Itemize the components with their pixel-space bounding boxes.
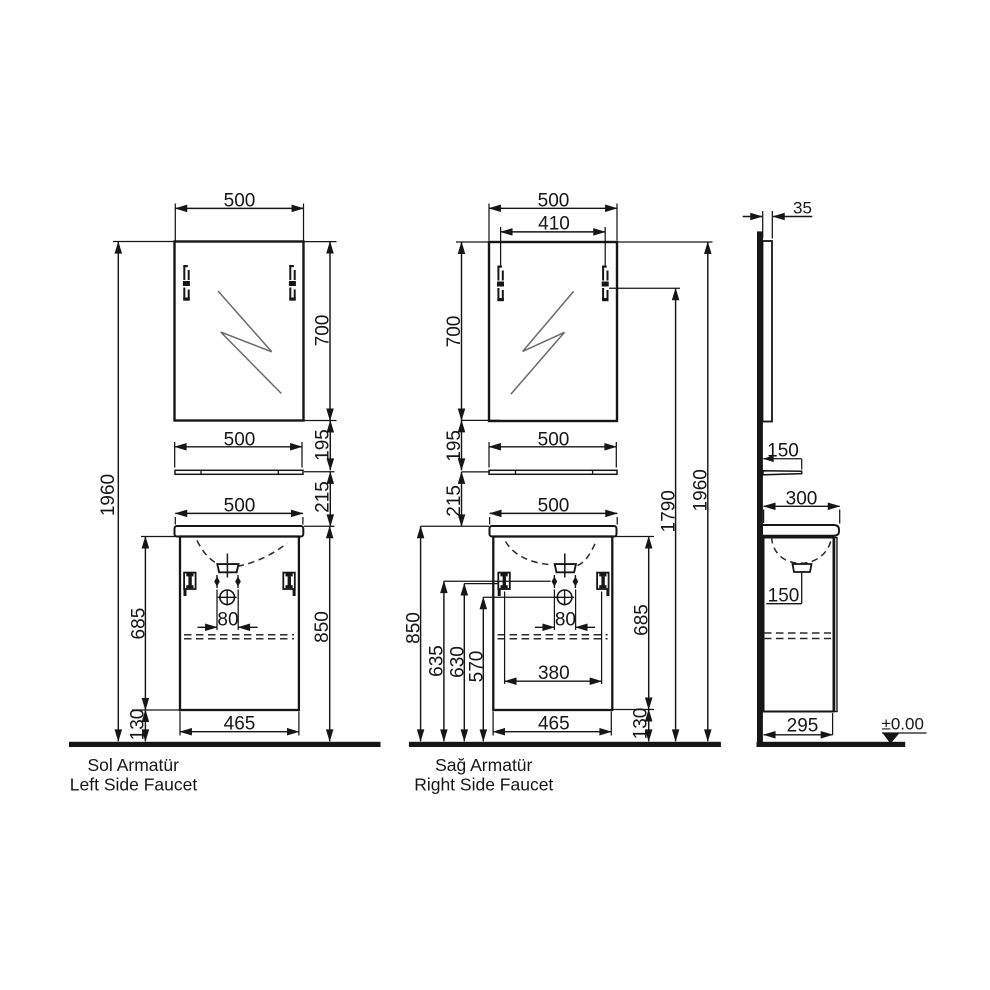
svg-text:570: 570 bbox=[467, 651, 488, 683]
svg-text:685: 685 bbox=[129, 608, 150, 640]
svg-text:±0.00: ±0.00 bbox=[882, 715, 924, 734]
svg-text:1790: 1790 bbox=[659, 490, 680, 532]
svg-text:Left Side Faucet: Left Side Faucet bbox=[70, 775, 198, 795]
svg-text:80: 80 bbox=[217, 610, 238, 631]
svg-text:Sağ Armatür: Sağ Armatür bbox=[435, 755, 532, 775]
svg-text:850: 850 bbox=[404, 612, 425, 644]
svg-text:Right Side Faucet: Right Side Faucet bbox=[414, 775, 553, 795]
svg-text:35: 35 bbox=[793, 199, 812, 218]
svg-text:295: 295 bbox=[787, 716, 819, 737]
svg-text:Sol Armatür: Sol Armatür bbox=[88, 755, 180, 775]
svg-text:630: 630 bbox=[448, 646, 469, 678]
svg-text:80: 80 bbox=[555, 610, 576, 631]
svg-text:1960: 1960 bbox=[98, 474, 119, 516]
